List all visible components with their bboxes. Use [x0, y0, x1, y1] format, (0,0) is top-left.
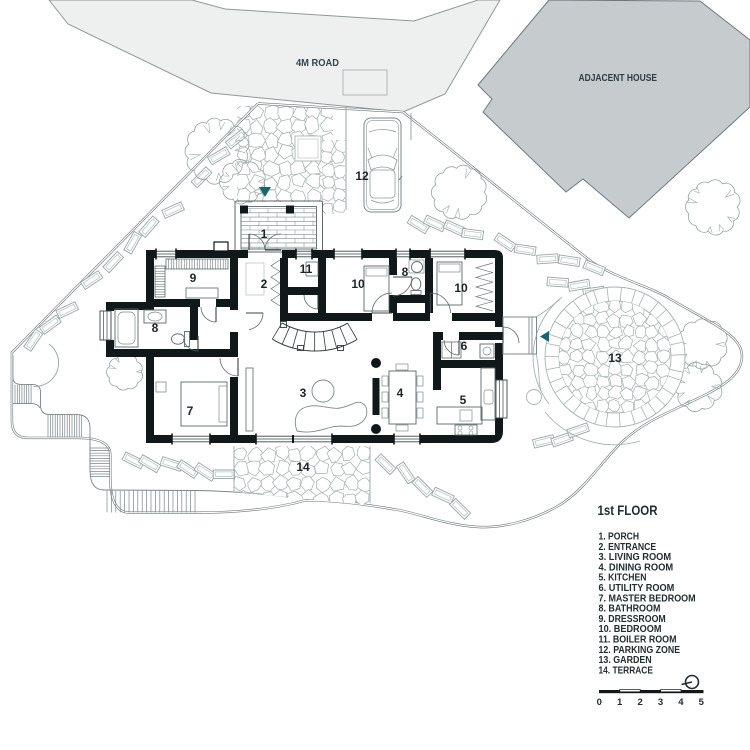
- svg-text:14. TERRACE: 14. TERRACE: [599, 665, 654, 676]
- svg-text:5: 5: [699, 697, 705, 708]
- svg-text:1st FLOOR: 1st FLOOR: [598, 502, 658, 518]
- svg-text:10: 10: [454, 281, 468, 295]
- svg-text:8: 8: [152, 321, 159, 335]
- svg-text:4: 4: [397, 386, 404, 400]
- svg-text:12: 12: [355, 169, 369, 183]
- svg-text:1: 1: [617, 697, 623, 708]
- svg-text:4: 4: [678, 697, 684, 708]
- svg-text:2: 2: [261, 277, 268, 291]
- svg-text:3: 3: [300, 386, 307, 400]
- svg-text:2: 2: [637, 697, 642, 708]
- svg-text:7: 7: [187, 404, 194, 418]
- svg-text:0: 0: [597, 697, 602, 708]
- svg-text:13: 13: [608, 351, 622, 365]
- svg-text:4M ROAD: 4M ROAD: [296, 58, 339, 69]
- svg-text:ADJACENT HOUSE: ADJACENT HOUSE: [579, 73, 658, 84]
- svg-text:5: 5: [460, 393, 467, 407]
- svg-text:9: 9: [190, 271, 197, 285]
- svg-text:1: 1: [261, 227, 268, 241]
- svg-text:6: 6: [461, 339, 468, 353]
- svg-text:8: 8: [402, 265, 409, 279]
- svg-text:14: 14: [296, 460, 310, 474]
- svg-text:10: 10: [351, 277, 365, 291]
- svg-text:11: 11: [300, 262, 313, 276]
- svg-text:3: 3: [658, 697, 663, 708]
